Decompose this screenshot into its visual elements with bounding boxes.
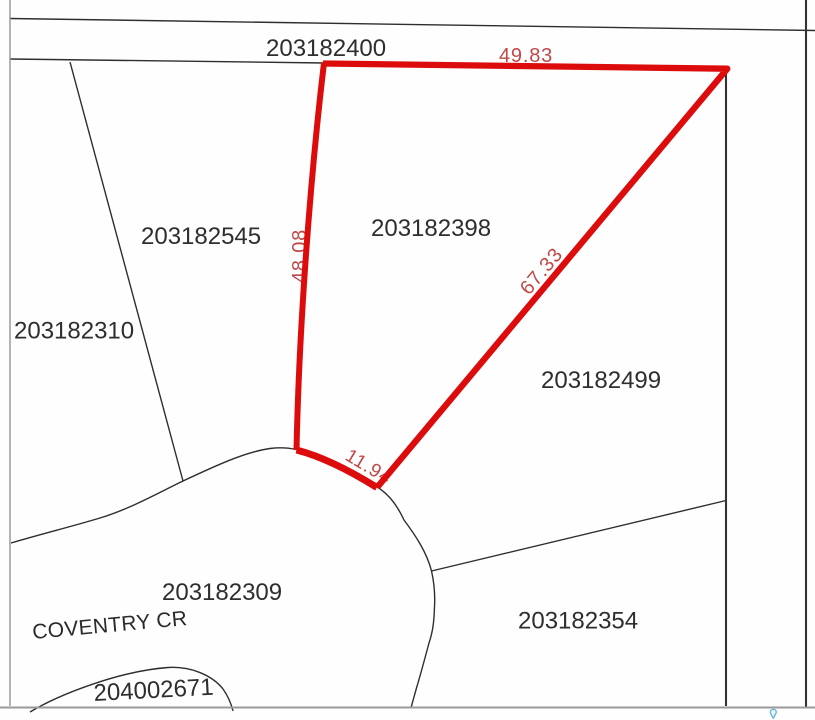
- svg-text:203182310: 203182310: [14, 318, 134, 345]
- svg-text:203182354: 203182354: [518, 608, 638, 635]
- svg-text:203182398: 203182398: [371, 215, 491, 242]
- svg-text:203182400: 203182400: [266, 35, 386, 62]
- svg-text:203182499: 203182499: [541, 367, 661, 394]
- svg-text:203182309: 203182309: [162, 579, 282, 606]
- svg-text:203182545: 203182545: [141, 223, 261, 250]
